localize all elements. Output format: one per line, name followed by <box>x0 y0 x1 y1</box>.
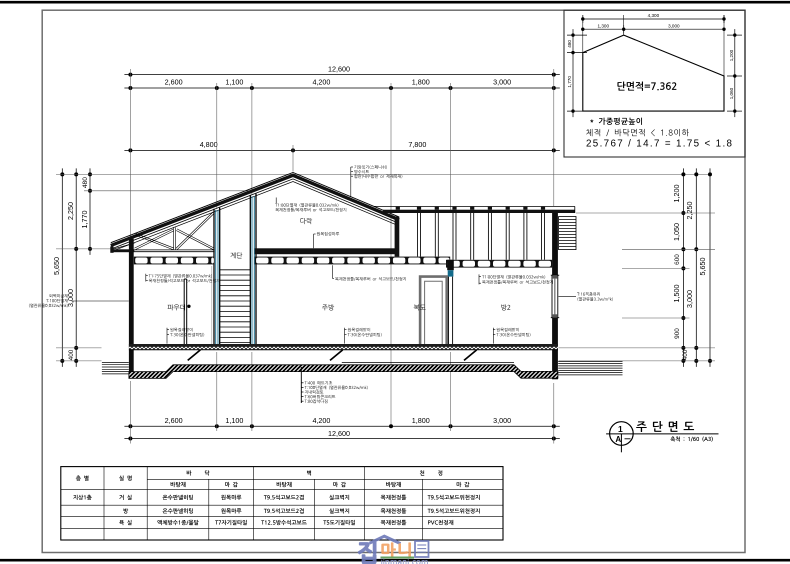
svg-text:3,000: 3,000 <box>668 23 680 28</box>
svg-text:3,000: 3,000 <box>493 416 511 425</box>
svg-text:1,800: 1,800 <box>412 78 430 87</box>
svg-text:1,050: 1,050 <box>672 223 681 241</box>
svg-text:1,800: 1,800 <box>412 416 430 425</box>
svg-text:2,600: 2,600 <box>165 78 183 87</box>
svg-text:1,500: 1,500 <box>672 285 681 303</box>
svg-text:1,100: 1,100 <box>225 78 243 87</box>
svg-text:400: 400 <box>68 349 75 360</box>
svg-text:1: 1 <box>618 424 623 434</box>
svg-text:3,000: 3,000 <box>685 290 694 308</box>
svg-text:1,200: 1,200 <box>729 49 734 61</box>
svg-text:600: 600 <box>674 254 681 265</box>
svg-text:1,060: 1,060 <box>729 87 734 99</box>
svg-text:2,600: 2,600 <box>165 416 183 425</box>
svg-text:400: 400 <box>682 349 689 360</box>
svg-text:4,800: 4,800 <box>200 140 218 149</box>
svg-text:1,770: 1,770 <box>80 211 89 229</box>
svg-text:1,770: 1,770 <box>567 76 572 88</box>
svg-text:2,250: 2,250 <box>685 202 694 220</box>
svg-text:5,650: 5,650 <box>52 257 61 275</box>
svg-text:3,000: 3,000 <box>66 289 75 307</box>
svg-text:480: 480 <box>567 40 572 48</box>
svg-text:12,600: 12,600 <box>328 429 350 438</box>
svg-text:1,300: 1,300 <box>598 23 610 28</box>
svg-text:480: 480 <box>82 177 89 188</box>
svg-text:1,100: 1,100 <box>225 416 243 425</box>
svg-text:4,300: 4,300 <box>648 13 660 18</box>
svg-text:4,200: 4,200 <box>312 416 330 425</box>
svg-text:5,650: 5,650 <box>698 258 707 276</box>
svg-text:4,200: 4,200 <box>312 78 330 87</box>
svg-text:3,000: 3,000 <box>493 78 511 87</box>
svg-text:2,250: 2,250 <box>66 202 75 220</box>
svg-text:7,800: 7,800 <box>408 140 426 149</box>
svg-text:1,200: 1,200 <box>672 185 681 203</box>
svg-text:900: 900 <box>674 328 681 339</box>
svg-text:25.767 / 14.7 = 1.75 < 1.8: 25.767 / 14.7 = 1.75 < 1.8 <box>586 139 733 150</box>
svg-text:A: A <box>615 435 621 444</box>
svg-text:12,600: 12,600 <box>328 64 350 73</box>
